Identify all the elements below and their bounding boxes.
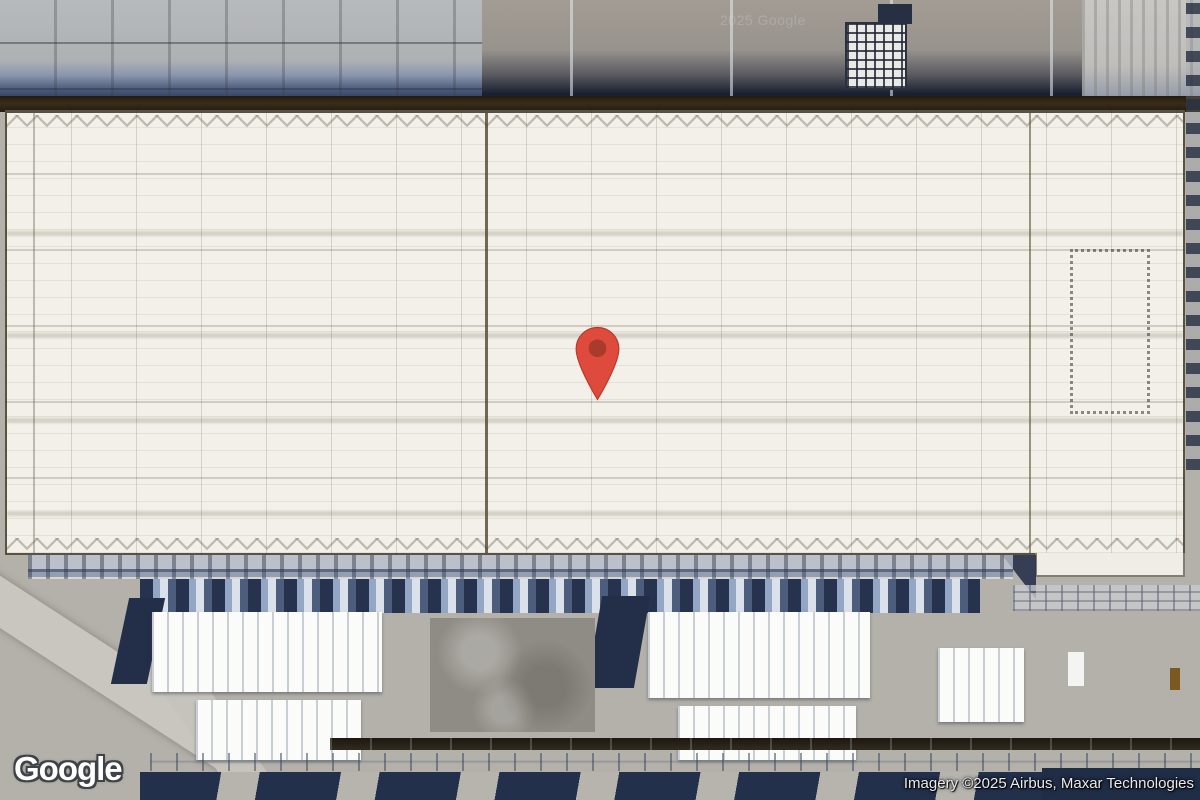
pin-body [576, 327, 619, 399]
upper-buildings-band [0, 0, 1200, 110]
horizontal-pipe-run [28, 555, 1013, 579]
vertical-pipe-bank [140, 579, 980, 613]
roof-dotted-marking [1070, 249, 1150, 414]
dirt-patch [430, 618, 595, 732]
roof-zigzag-top [7, 115, 1183, 128]
roof-stain-band [7, 231, 1183, 236]
upper-left-rooftop [0, 0, 482, 110]
parked-cars-column [1186, 0, 1200, 470]
pin-inner-dot [589, 339, 607, 357]
location-pin-marker[interactable] [575, 326, 620, 402]
google-logo[interactable]: Google [14, 750, 122, 788]
imagery-attribution: Imagery ©2025 Airbus, Maxar Technologies [904, 775, 1194, 792]
satellite-map-canvas[interactable]: 2025 Google Google Image [0, 0, 1200, 800]
cooling-unit-building [196, 700, 361, 760]
roof-right-extension [1035, 553, 1185, 577]
roof-stain-band [7, 418, 1183, 423]
dark-pipeline [330, 738, 1200, 750]
pipe-scaffold-right [1013, 585, 1200, 611]
cooling-unit-building [648, 612, 870, 698]
roof-stain-band [7, 511, 1183, 516]
cooling-unit-building [152, 612, 382, 692]
upper-right-concrete [1082, 0, 1200, 110]
google-watermark: 2025 Google [720, 12, 920, 28]
roof-zigzag-bottom [7, 538, 1183, 551]
white-truck [1068, 652, 1084, 686]
equipment-crate [1170, 668, 1180, 690]
cooling-unit-building [938, 648, 1024, 722]
rooftop-vent-grid [845, 22, 907, 90]
cooling-unit-building [678, 706, 856, 760]
